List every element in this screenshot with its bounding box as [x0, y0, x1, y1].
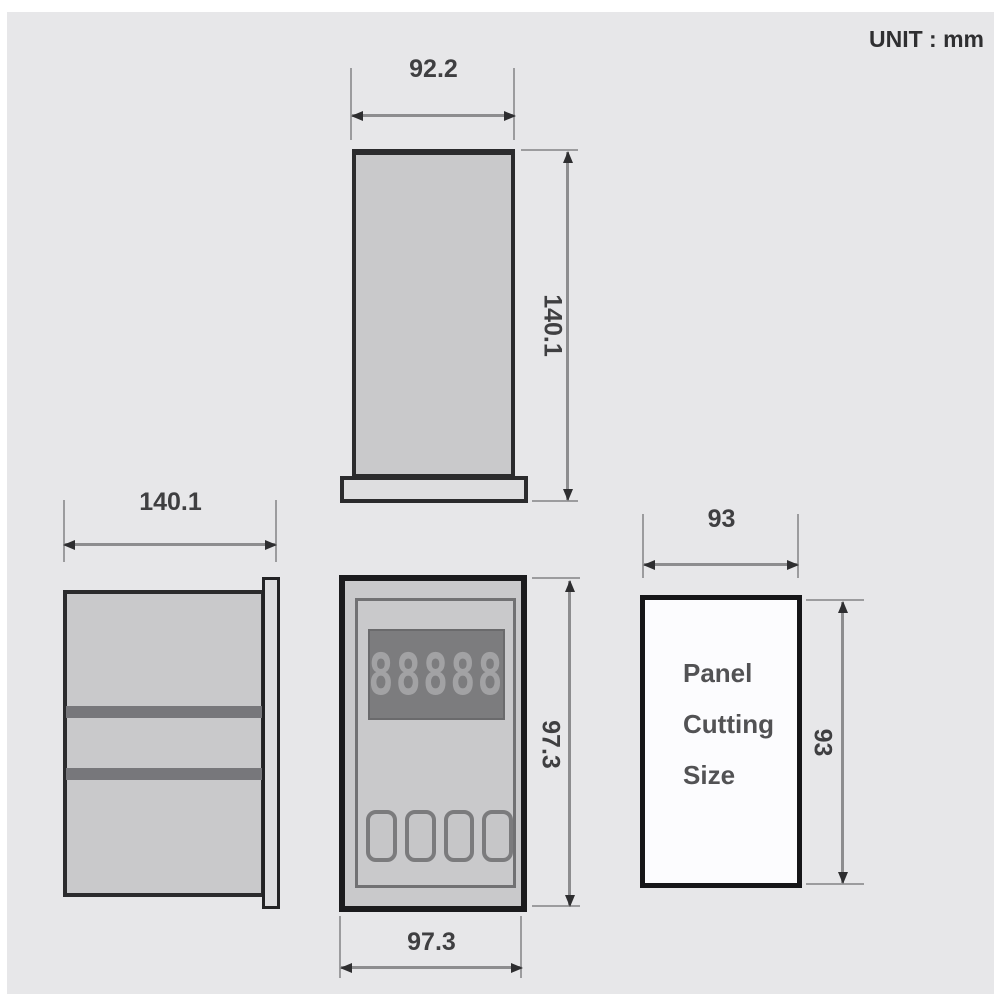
side-view-rib: [66, 768, 263, 780]
front-height-dim-label: 97.3: [536, 705, 565, 785]
front-width-dim-label: 97.3: [341, 928, 522, 957]
front-button: [405, 810, 436, 862]
front-button: [482, 810, 513, 862]
display-digits: 88888: [368, 641, 504, 707]
panel-cutout-label-line1: Panel: [683, 648, 774, 699]
top-view-front-bezel: [340, 476, 528, 503]
front-width-dim-line: [341, 966, 522, 969]
panel-cutout-label: Panel Cutting Size: [683, 648, 774, 801]
digital-display: 88888: [368, 629, 505, 720]
cutout-height-dim-label: 93: [808, 713, 837, 773]
cutout-width-dim-line: [644, 563, 798, 566]
top-view-width-dim-line: [352, 114, 515, 117]
front-button: [444, 810, 475, 862]
side-view-width-dim-label: 140.1: [65, 488, 276, 517]
dim-extension-line: [806, 883, 864, 885]
front-button-row: [366, 810, 513, 862]
cutout-height-dim-line: [841, 602, 844, 883]
dim-extension-line: [513, 68, 515, 140]
dim-extension-line: [350, 68, 352, 140]
side-view-rib: [66, 706, 263, 718]
dim-extension-line: [806, 599, 864, 601]
top-view-body: [352, 149, 515, 478]
top-view-width-dim-label: 92.2: [352, 55, 515, 84]
front-button: [366, 810, 397, 862]
front-height-dim-line: [568, 581, 571, 906]
side-view-front-bezel: [262, 577, 280, 909]
dim-extension-line: [63, 500, 65, 562]
panel-cutout-label-line3: Size: [683, 750, 774, 801]
cutout-width-dim-label: 93: [643, 505, 800, 534]
panel-cutout-label-line2: Cutting: [683, 699, 774, 750]
dim-extension-line: [275, 500, 277, 562]
side-view-width-dim-line: [64, 543, 276, 546]
dim-extension-line: [532, 577, 580, 579]
side-view-body: [63, 590, 265, 897]
dimension-drawing-page: UNIT : mm 92.2 140.1 140.1 88888: [0, 0, 1000, 1000]
top-view-depth-dim-label: 140.1: [538, 286, 567, 366]
unit-label: UNIT : mm: [869, 26, 984, 53]
